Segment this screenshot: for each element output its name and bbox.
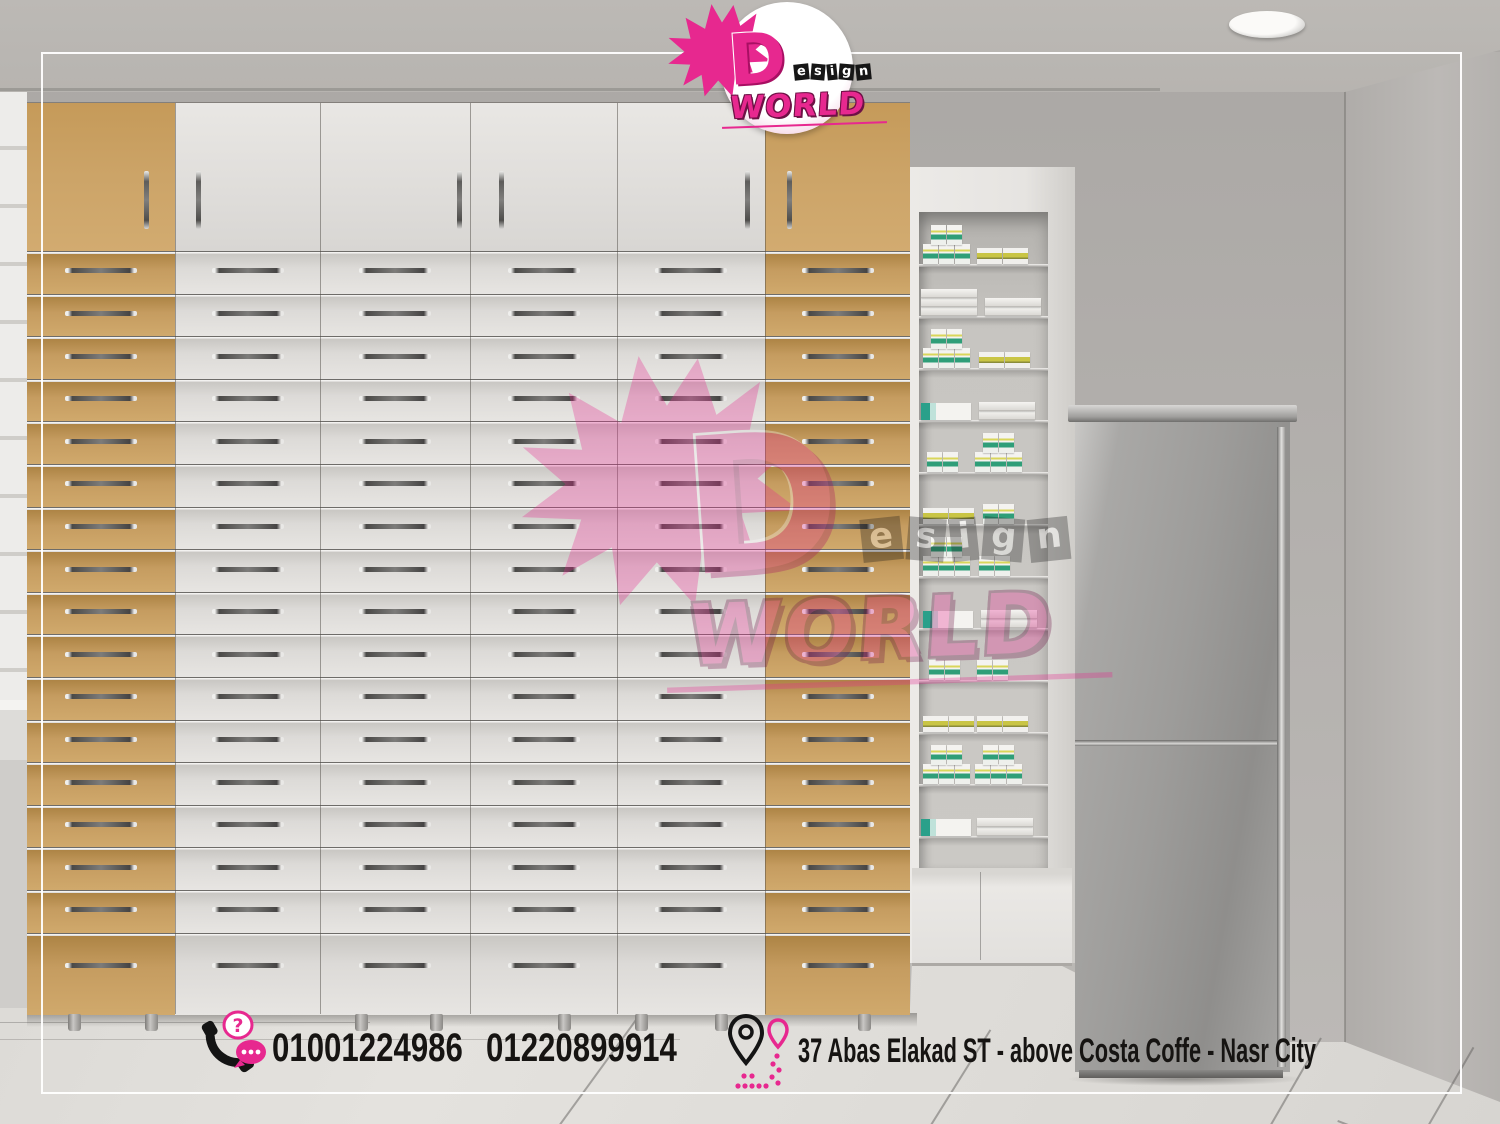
- recessed-spotlight: [1229, 11, 1305, 38]
- phone-number-2: 01220899914: [486, 1026, 677, 1071]
- decorative-white-frame: [41, 52, 1462, 1094]
- design-world-logo: D esign WORLD: [652, 0, 882, 150]
- logo-esign-letter: e: [793, 63, 809, 80]
- logo-esign-letter: n: [856, 63, 873, 81]
- logo-esign-letter: i: [826, 63, 838, 80]
- svg-text:?: ?: [232, 1015, 243, 1037]
- logo-world-text: WORLD: [729, 86, 867, 127]
- phone-chat-icon: ?: [198, 1008, 268, 1086]
- phone-number-1: 01001224986: [272, 1026, 463, 1071]
- location-pin-icon: [728, 1012, 798, 1096]
- left-counter: [0, 700, 27, 1015]
- logo-esign-letter: g: [838, 63, 855, 80]
- logo-esign-tiles: esign: [794, 64, 872, 80]
- pharmacy-interior-render: D esign WORLD D esign WORLD ? 0100122498…: [0, 0, 1500, 1124]
- logo-esign-letter: s: [810, 63, 825, 80]
- address-text: 37 Abas Elakad ST - above Costa Coffe - …: [798, 1032, 1316, 1071]
